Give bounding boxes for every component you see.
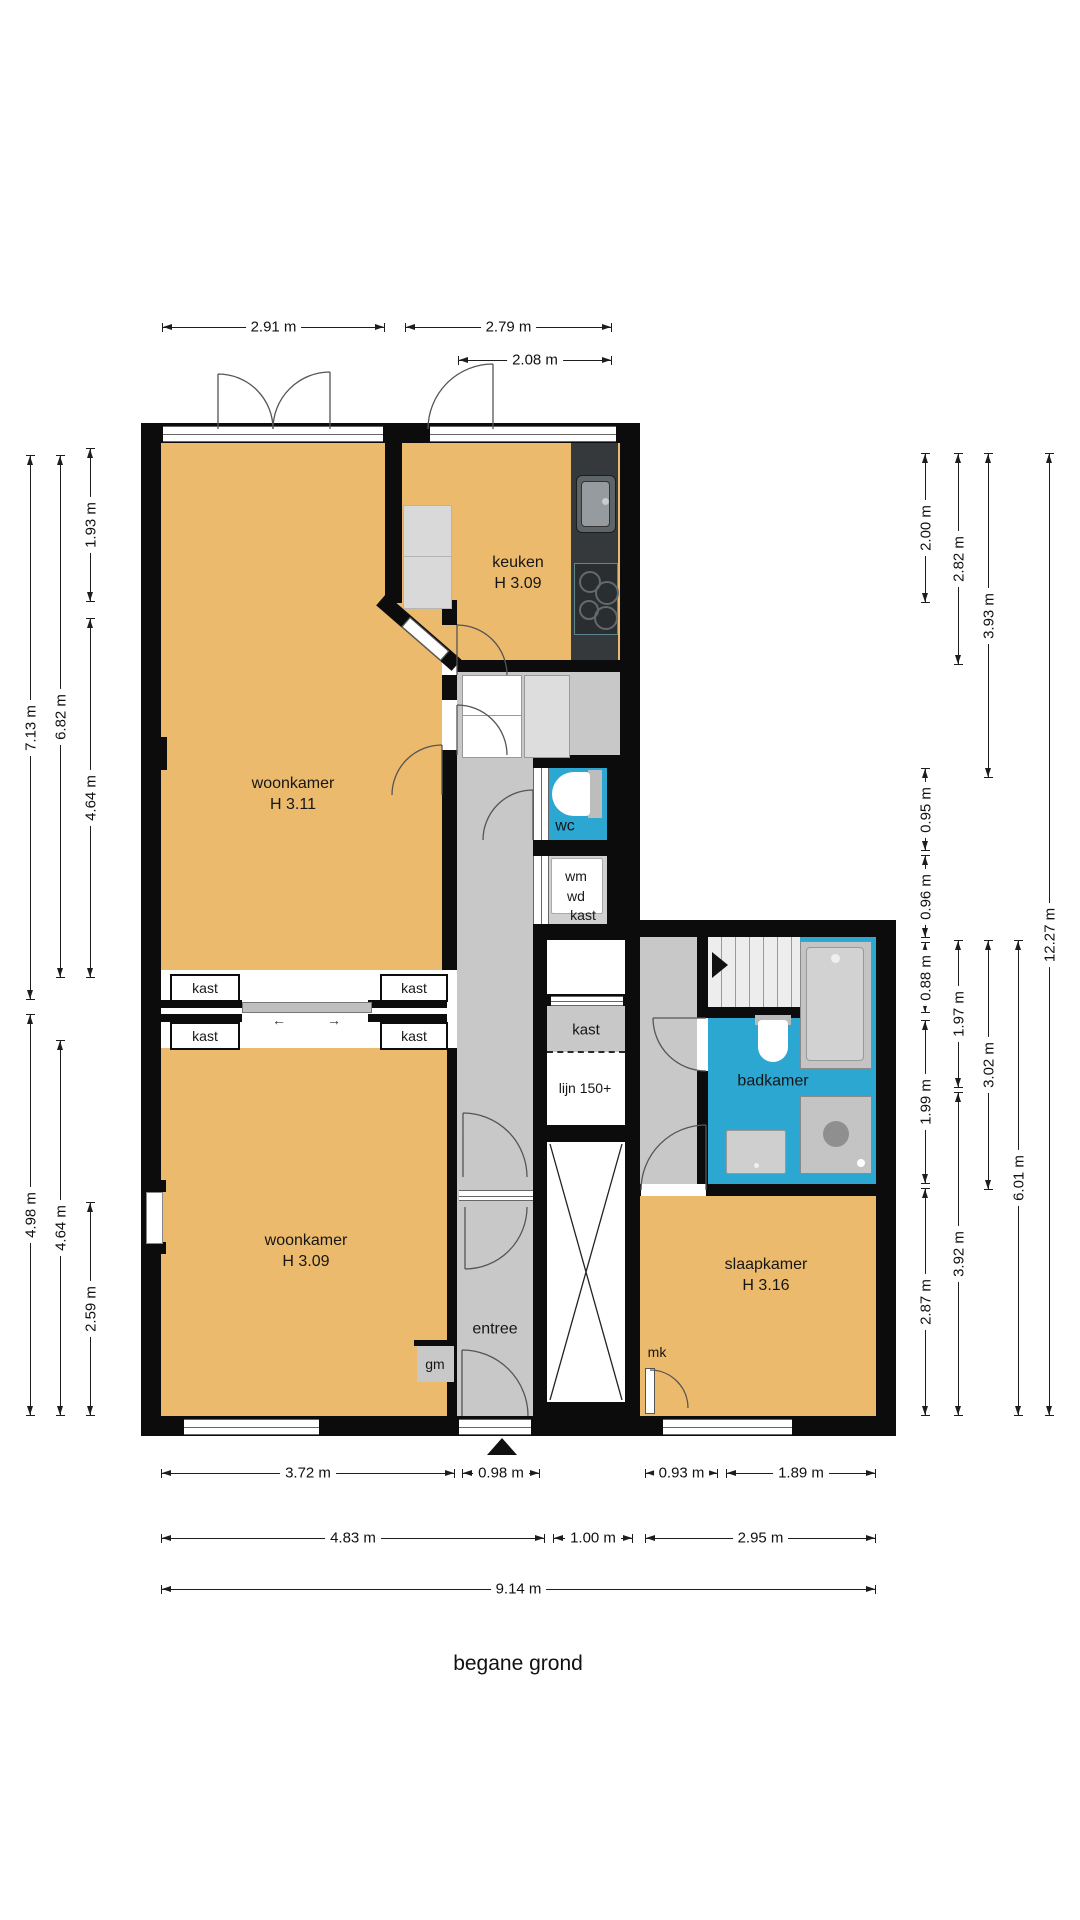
dimension: 3.72 m: [161, 1467, 455, 1480]
dimension-label: 2.59 m: [83, 1281, 100, 1337]
dimension-label: 3.72 m: [280, 1465, 336, 1482]
dimension: 4.98 m: [24, 1014, 37, 1416]
room-height: H 3.09: [492, 574, 544, 595]
dimension-label: 2.08 m: [507, 352, 563, 369]
dimension: 4.64 m: [84, 618, 97, 978]
dimension: 7.13 m: [24, 455, 37, 1000]
wmwd-kast-label: kast: [570, 906, 596, 924]
dimension-label: 12.27 m: [1042, 902, 1059, 966]
wd-label: wd: [567, 887, 585, 905]
french-door-left: [218, 374, 273, 429]
keuken-exterior-door: [428, 364, 493, 429]
dimension-label: 6.82 m: [53, 689, 70, 745]
dimension-label: 9.14 m: [491, 1581, 547, 1598]
hall-door-1: [457, 625, 507, 675]
dimension: 1.00 m: [553, 1532, 633, 1545]
badkamer-door: [653, 1018, 706, 1071]
dimension: 2.82 m: [952, 453, 965, 665]
dimension: 3.92 m: [952, 1092, 965, 1416]
dimension: 0.88 m: [919, 942, 932, 1013]
dimension: 3.02 m: [982, 940, 995, 1190]
entree-door-mid: [465, 1207, 527, 1269]
dimension: 1.93 m: [84, 448, 97, 602]
dimension: 4.83 m: [161, 1532, 545, 1545]
dimension-label: 2.00 m: [918, 500, 935, 556]
void-cross: [550, 1144, 622, 1400]
dimension-label: 1.99 m: [918, 1074, 935, 1130]
dimension: 2.87 m: [919, 1188, 932, 1416]
dimension: 2.91 m: [162, 321, 385, 334]
dimension: 6.01 m: [1012, 940, 1025, 1416]
entree-door-upper: [463, 1113, 527, 1177]
dimension-label: 0.88 m: [918, 950, 935, 1006]
dimension: 3.93 m: [982, 453, 995, 778]
wm-label: wm: [565, 867, 587, 885]
dimension: 0.96 m: [919, 855, 932, 938]
room-label-woonkamer-bottom: woonkamer H 3.09: [265, 1231, 348, 1273]
page-title: begane grond: [453, 1652, 583, 1676]
dimension: 1.99 m: [919, 1020, 932, 1184]
dimension-label: 7.13 m: [23, 700, 40, 756]
mk-label: mk: [648, 1343, 667, 1361]
dimension: 0.93 m: [645, 1467, 718, 1480]
dimension: 0.98 m: [462, 1467, 540, 1480]
room-label-entree: entree: [472, 1320, 517, 1341]
room-label-kast-center: kast: [572, 1020, 600, 1040]
room-label-slaapkamer: slaapkamer H 3.16: [725, 1255, 808, 1297]
dimension-label: 4.83 m: [325, 1530, 381, 1547]
room-label-badkamer: badkamer: [737, 1072, 808, 1093]
dimension: 1.97 m: [952, 940, 965, 1088]
dimension: 2.00 m: [919, 453, 932, 603]
front-door: [462, 1350, 528, 1416]
room-name: woonkamer: [265, 1231, 348, 1252]
dimension-label: 4.64 m: [53, 1200, 70, 1256]
wc-door: [483, 790, 533, 840]
dimension-label: 2.79 m: [481, 319, 537, 336]
dimension-label: 4.64 m: [83, 770, 100, 826]
dimension-label: 1.89 m: [773, 1465, 829, 1482]
dimension-label: 2.87 m: [918, 1274, 935, 1330]
room-label-keuken: keuken H 3.09: [492, 553, 544, 595]
dimension-label: 2.91 m: [246, 319, 302, 336]
dimension-label: 0.96 m: [918, 869, 935, 925]
dimension: 2.95 m: [645, 1532, 876, 1545]
room-label-lijn150: lijn 150+: [559, 1079, 612, 1097]
room-name: woonkamer: [252, 774, 335, 795]
room-name: keuken: [492, 553, 544, 574]
dimension-label: 3.92 m: [951, 1226, 968, 1282]
dimension: 1.89 m: [726, 1467, 876, 1480]
dimension-label: 2.95 m: [733, 1530, 789, 1547]
dimension: 4.64 m: [54, 1040, 67, 1416]
room-height: H 3.16: [725, 1276, 808, 1297]
room-name: slaapkamer: [725, 1255, 808, 1276]
dimension-label: 1.00 m: [565, 1530, 621, 1547]
hall-door-2: [457, 705, 507, 755]
floorplan-page: kast kast kast kast ← → woonkamer H 3.11…: [0, 0, 1080, 1920]
room-label-wc: wc: [555, 817, 575, 838]
dimension-label: 0.95 m: [918, 782, 935, 838]
dimension-label: 1.93 m: [83, 497, 100, 553]
dimension-label: 3.02 m: [981, 1037, 998, 1093]
dimension-label: 3.93 m: [981, 588, 998, 644]
room-label-woonkamer-top: woonkamer H 3.11: [252, 774, 335, 816]
woonkamer-door: [392, 745, 442, 795]
dimension-label: 1.97 m: [951, 986, 968, 1042]
dimension: 2.08 m: [458, 354, 612, 367]
room-height: H 3.11: [252, 795, 335, 816]
dimension: 0.95 m: [919, 768, 932, 851]
slaapkamer-door: [641, 1125, 706, 1190]
dimension: 9.14 m: [161, 1583, 876, 1596]
room-height: H 3.09: [265, 1252, 348, 1273]
french-door-right: [273, 372, 330, 429]
dimension: 12.27 m: [1043, 453, 1056, 1416]
gm-label: gm: [425, 1355, 444, 1373]
dimension-label: 2.82 m: [951, 531, 968, 587]
dimension-label: 0.93 m: [654, 1465, 710, 1482]
dimension-label: 0.98 m: [473, 1465, 529, 1482]
dimension: 6.82 m: [54, 455, 67, 978]
dimension: 2.79 m: [405, 321, 612, 334]
mk-door: [650, 1370, 688, 1408]
dimension-label: 6.01 m: [1011, 1150, 1028, 1206]
dimension: 2.59 m: [84, 1202, 97, 1416]
dimension-label: 4.98 m: [23, 1187, 40, 1243]
